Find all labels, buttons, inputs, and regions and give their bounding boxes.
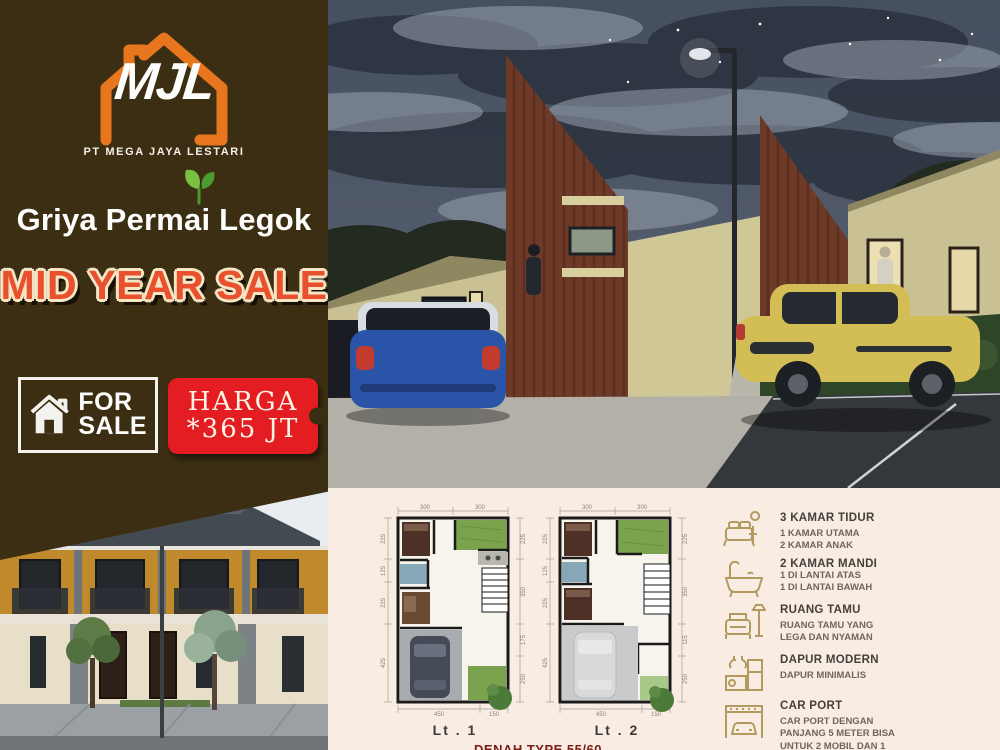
spec-carport: CAR PORT CAR PORT DENGAN PANJANG 5 METER… bbox=[722, 698, 994, 750]
bathtub-icon bbox=[722, 556, 766, 600]
price-value: *365 JT bbox=[187, 416, 300, 443]
night-houses-render bbox=[328, 0, 1000, 488]
price-label: HARGA bbox=[188, 389, 299, 416]
svg-text:425: 425 bbox=[381, 657, 387, 668]
spec-bedrooms: 3 KAMAR TIDUR 1 KAMAR UTAMA 2 KAMAR ANAK bbox=[722, 510, 994, 554]
svg-text:125: 125 bbox=[543, 565, 549, 576]
svg-text:115: 115 bbox=[683, 635, 689, 645]
svg-text:300: 300 bbox=[420, 505, 431, 511]
svg-text:150: 150 bbox=[489, 712, 500, 718]
svg-text:300: 300 bbox=[475, 505, 486, 511]
kitchen-icon bbox=[722, 652, 766, 696]
svg-text:425: 425 bbox=[543, 657, 549, 668]
spec-livingroom: RUANG TAMU RUANG TAMU YANG LEGA DAN NYAM… bbox=[722, 602, 994, 646]
floorplan-lt2: 300 300 225 125 225 425 225 350 115 250 … bbox=[542, 504, 692, 720]
floorplan-lt1: 300 300 225 125 225 425 225 350 175 250 … bbox=[380, 504, 530, 720]
plan-label-lt1: Lt . 1 bbox=[380, 722, 530, 738]
floorplan-panel: 300 300 225 125 225 425 225 350 175 250 … bbox=[328, 488, 1000, 750]
plan-label-lt2: Lt . 2 bbox=[542, 722, 692, 738]
blue-car bbox=[346, 302, 510, 426]
brand-panel: MJL PT MEGA JAYA LESTARI Griya Permai Le… bbox=[0, 0, 328, 560]
plan2-car bbox=[574, 632, 616, 698]
svg-text:300: 300 bbox=[582, 505, 593, 511]
svg-text:450: 450 bbox=[596, 712, 607, 718]
price-tag: HARGA *365 JT bbox=[168, 378, 318, 454]
house-icon bbox=[29, 392, 69, 438]
bed-icon bbox=[722, 510, 766, 554]
svg-text:225: 225 bbox=[381, 533, 387, 544]
plan1-car bbox=[410, 636, 450, 698]
for-sale-line2: SALE bbox=[78, 415, 147, 439]
svg-text:225: 225 bbox=[521, 533, 527, 544]
spec-kitchen: DAPUR MODERN DAPUR MINIMALIS bbox=[722, 652, 994, 696]
svg-text:225: 225 bbox=[543, 533, 549, 544]
svg-text:350: 350 bbox=[683, 586, 689, 597]
svg-text:300: 300 bbox=[637, 505, 648, 511]
person-silhouette bbox=[526, 244, 541, 295]
svg-text:125: 125 bbox=[381, 565, 387, 576]
svg-text:225: 225 bbox=[381, 597, 387, 608]
project-title: Griya Permai Legok bbox=[0, 202, 328, 238]
svg-text:225: 225 bbox=[543, 597, 549, 608]
svg-text:350: 350 bbox=[521, 586, 527, 597]
logo-monogram: MJL bbox=[0, 52, 331, 112]
svg-text:250: 250 bbox=[521, 673, 527, 684]
svg-text:225: 225 bbox=[683, 533, 689, 544]
carport-icon bbox=[722, 698, 766, 742]
plans-caption: DENAH TYPE 55/60 bbox=[388, 742, 688, 750]
svg-text:250: 250 bbox=[683, 673, 689, 684]
svg-text:450: 450 bbox=[434, 712, 445, 718]
promo-headline: MID YEAR SALE bbox=[0, 262, 328, 309]
spec-bathrooms: 2 KAMAR MANDI 1 DI LANTAI ATAS 1 DI LANT… bbox=[722, 556, 994, 600]
svg-text:175: 175 bbox=[521, 634, 527, 645]
lamp-pole bbox=[160, 546, 164, 738]
for-sale-badge: FOR SALE bbox=[18, 377, 158, 453]
svg-text:150: 150 bbox=[651, 712, 662, 718]
property-sale-flyer: MJL PT MEGA JAYA LESTARI Griya Permai Le… bbox=[0, 0, 1000, 750]
company-name: PT MEGA JAYA LESTARI bbox=[0, 146, 328, 158]
sofa-icon bbox=[722, 602, 766, 646]
